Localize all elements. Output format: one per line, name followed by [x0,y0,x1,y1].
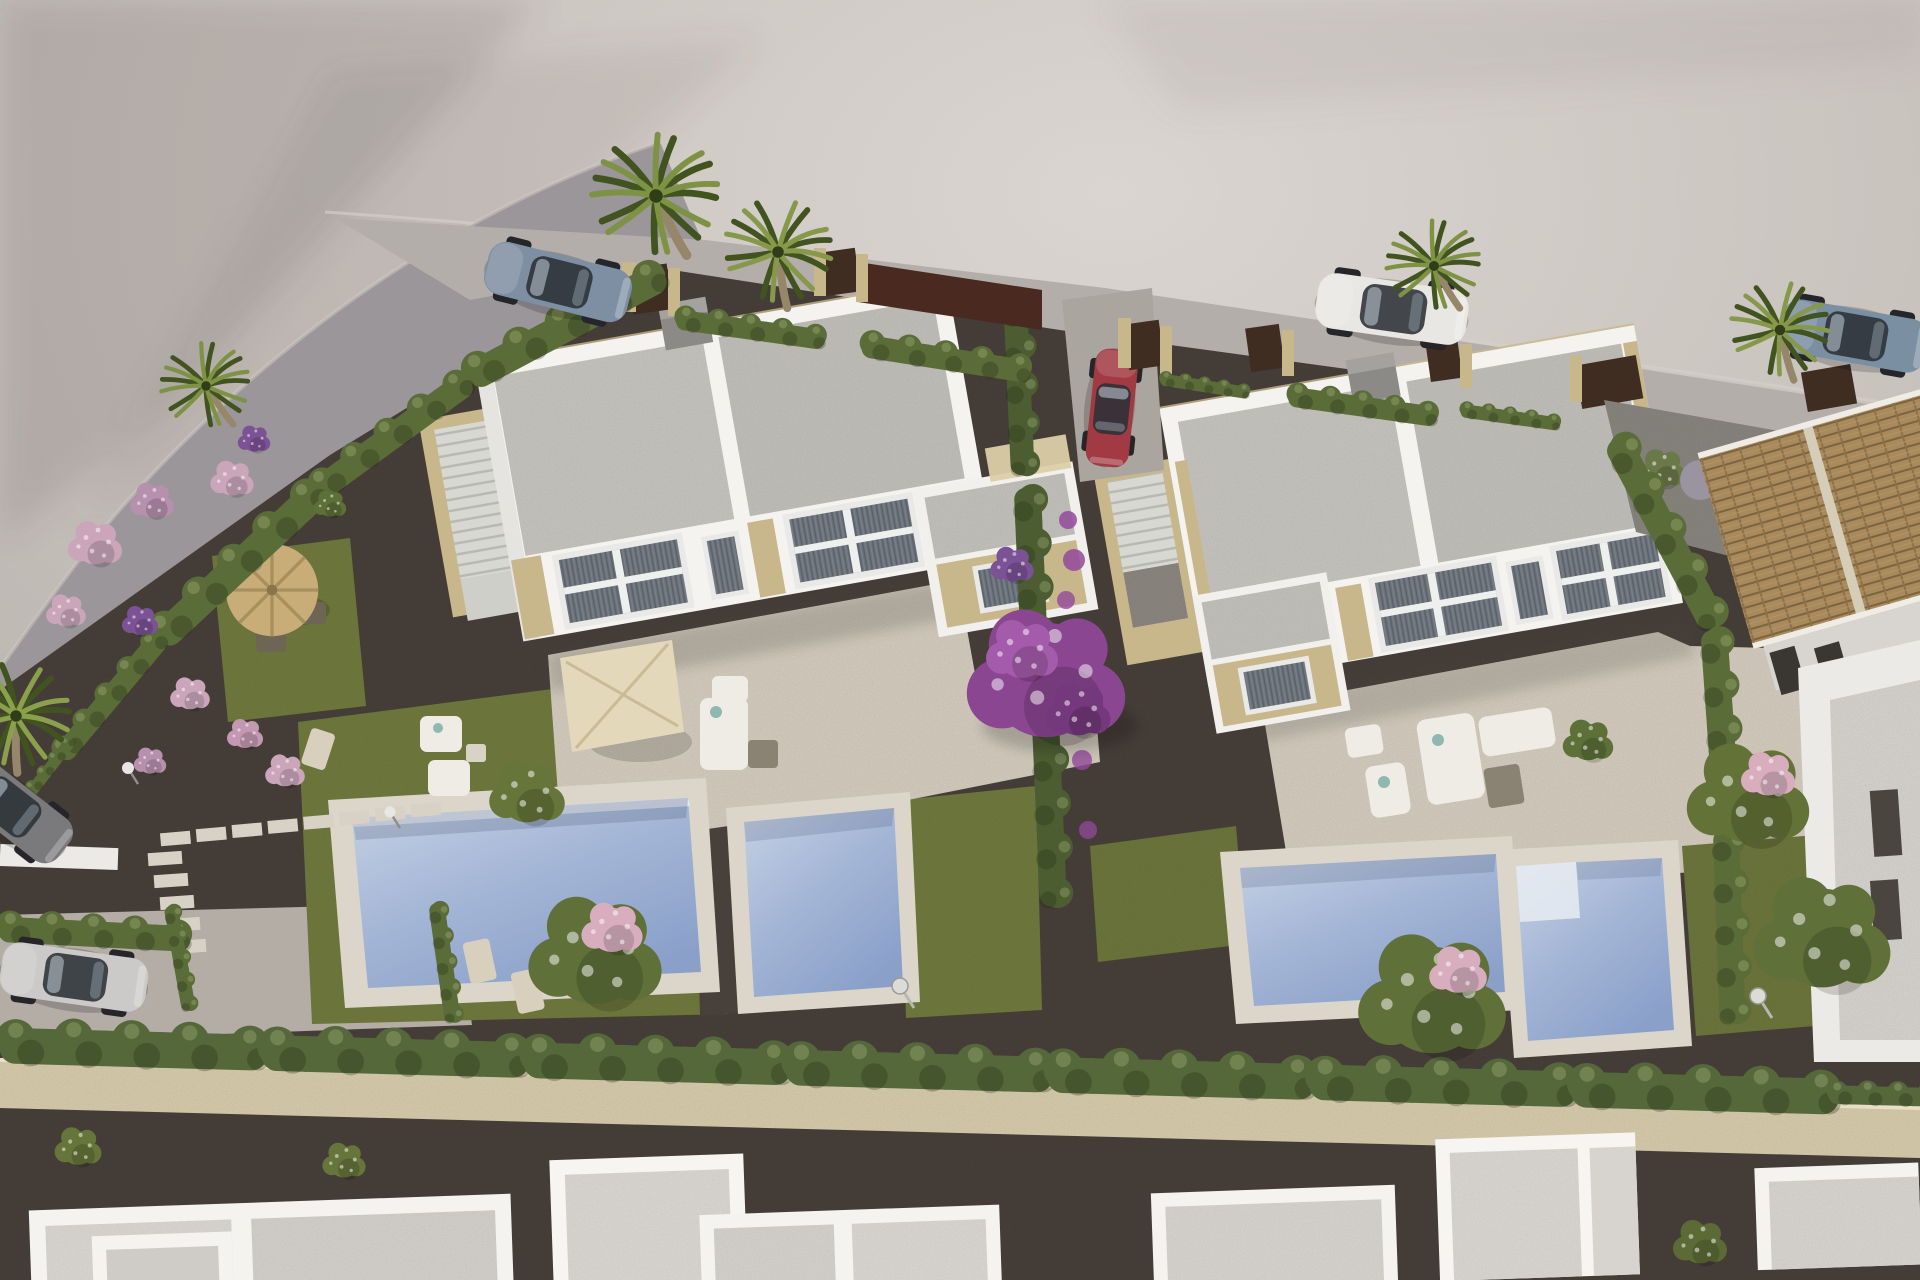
pool-right-unit [1498,840,1692,1058]
annex [1192,572,1350,733]
bottom-building-3 [699,1205,1002,1280]
roof-left-unit [494,340,734,556]
bottom-building-4 [1151,1185,1398,1280]
render-canvas [0,0,1920,1280]
bottom-building-5 [1435,1132,1640,1280]
bottom-building-6 [1754,1163,1920,1271]
cream-parasol-dining [560,640,692,762]
right-neighbour-building [1798,640,1920,1062]
second-pool [726,792,920,1014]
